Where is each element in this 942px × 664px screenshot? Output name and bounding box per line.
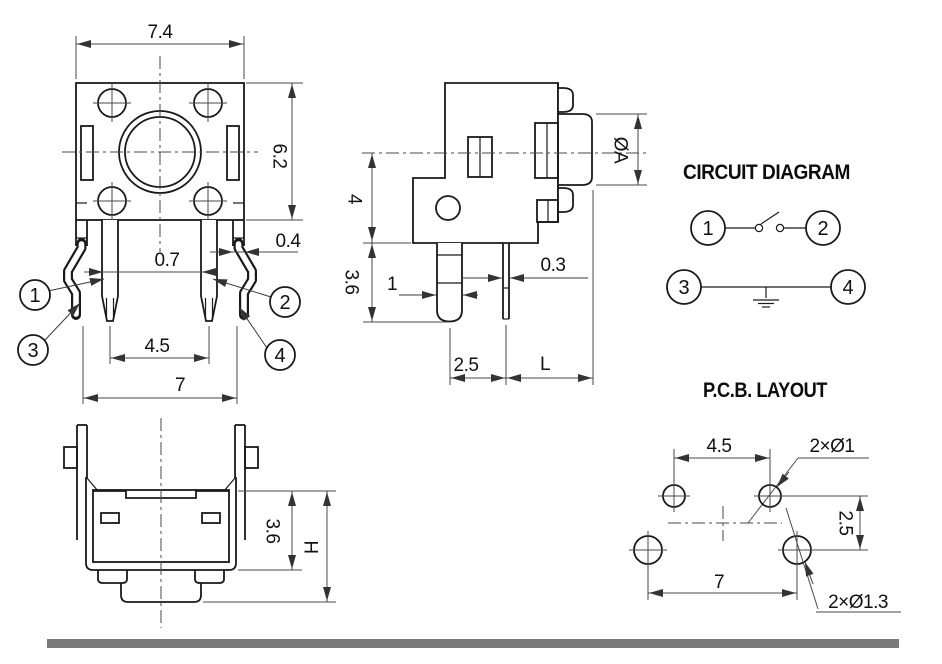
thin-pin-side — [502, 243, 510, 319]
circuit-diagram-title: CIRCUIT DIAGRAM — [683, 161, 850, 184]
dim-top-hole-pitch: 4.5 — [707, 436, 732, 457]
dim-bent-pin-width: 0.4 — [276, 231, 302, 252]
page-divider-bar — [47, 639, 899, 648]
dim-body-depth: 4 — [343, 194, 364, 205]
pin-balloon-3: 3 — [18, 303, 80, 365]
dim-flat-pin-width: 1 — [387, 274, 397, 295]
pcb-hole-large-left — [629, 531, 667, 569]
dim-row-pitch: 2.5 — [834, 511, 855, 536]
arm-right — [235, 425, 258, 540]
clip-bottom — [558, 188, 573, 212]
dim-pin-width: 0.7 — [155, 250, 180, 271]
technical-drawing: 7.4 — [0, 0, 942, 664]
pin-balloon-3-label: 3 — [27, 340, 38, 362]
pin-balloon-1-label: 1 — [29, 285, 40, 307]
pin-balloon-2-label: 2 — [279, 292, 290, 314]
pin-balloon-1: 1 — [20, 279, 104, 310]
dim-pin-length-side: 3.6 — [340, 270, 361, 295]
pcb-layout: P.C.B. LAYOUT 4.5 2×Ø1 — [629, 379, 901, 613]
dim-bottom-hole-pitch: 7 — [714, 572, 724, 593]
pcb-hole-small-right — [754, 480, 786, 512]
dim-thin-pin-width: 0.3 — [541, 255, 566, 276]
dim-stem-length: L — [540, 354, 550, 375]
dim-bottom-body-height: 3.6 — [261, 519, 282, 544]
terminal-1-label: 1 — [702, 218, 713, 240]
circuit-diagram: CIRCUIT DIAGRAM 1 2 3 4 — [667, 161, 865, 307]
clip-top — [558, 88, 573, 112]
label-small-holes: 2×Ø1 — [809, 436, 854, 457]
pin-balloon-4-label: 4 — [274, 345, 285, 367]
slot-right — [202, 513, 220, 523]
bent-pin-right — [239, 243, 253, 315]
dim-front-body-width: 7.4 — [148, 22, 174, 43]
terminal-2-label: 2 — [817, 218, 828, 240]
dim-total-height: H — [299, 540, 320, 553]
dim-inner-pin-pitch: 4.5 — [145, 336, 170, 357]
dim-front-body-height: 6.2 — [268, 144, 289, 169]
label-large-holes: 2×Ø1.3 — [828, 592, 888, 613]
switch-symbol — [725, 212, 806, 232]
foot-right — [195, 570, 224, 583]
dim-outer-pin-pitch: 7 — [175, 375, 185, 396]
inner-pin-left — [102, 220, 118, 321]
pin-balloon-2: 2 — [213, 279, 300, 317]
dim-pin-offset: 2.5 — [454, 355, 479, 376]
terminal-4-label: 4 — [842, 277, 853, 299]
foot-left — [98, 570, 127, 583]
terminal-3-label: 3 — [678, 277, 689, 299]
flat-pin-side — [437, 243, 462, 322]
side-view: 4 3.6 1 0.3 2.5 L ØA — [340, 83, 648, 385]
slot-left — [101, 513, 119, 523]
dim-button-diameter: ØA — [609, 137, 630, 164]
datasheet-drawing-page: 7.4 — [0, 0, 942, 664]
pcb-hole-large-right — [778, 531, 816, 569]
front-view: 7.4 — [18, 22, 303, 404]
button-side — [558, 114, 592, 185]
pcb-hole-small-left — [658, 480, 690, 512]
ground-symbol — [701, 287, 831, 307]
bottom-view: 3.6 H — [64, 418, 336, 628]
arm-left — [64, 425, 87, 540]
inner-pin-right — [201, 220, 217, 321]
pcb-layout-title: P.C.B. LAYOUT — [703, 379, 828, 402]
